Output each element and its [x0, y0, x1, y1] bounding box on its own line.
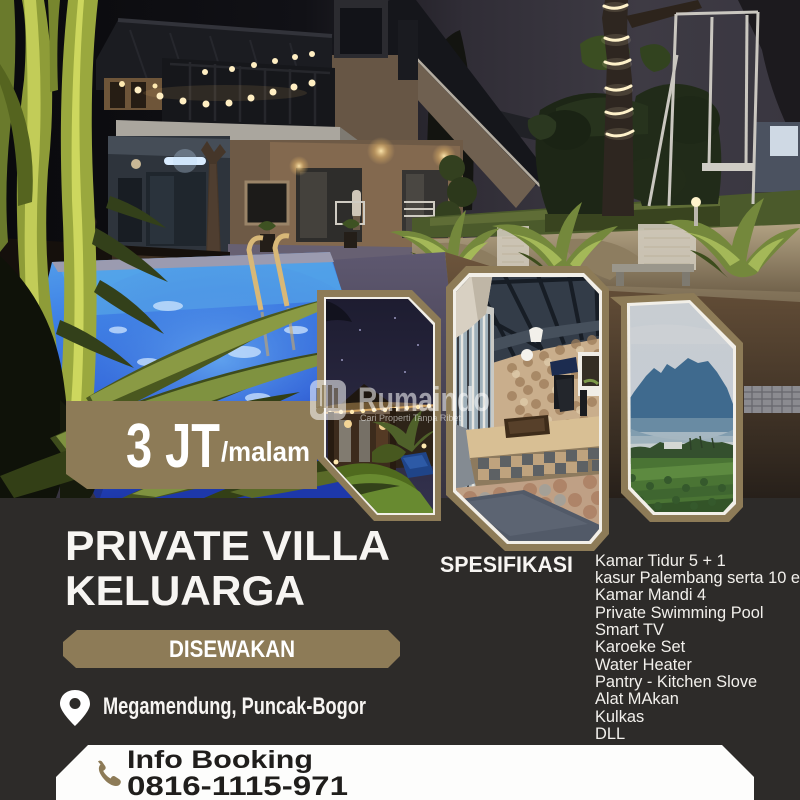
svg-text:DLL: DLL	[595, 725, 625, 743]
svg-text:kasur Palembang serta 10 extra: kasur Palembang serta 10 extra	[595, 569, 800, 587]
svg-text:Info Booking: Info Booking	[127, 746, 313, 774]
svg-text:Water Heater: Water Heater	[595, 656, 692, 674]
svg-text:Alat MAkan: Alat MAkan	[595, 690, 679, 708]
svg-text:Kamar Mandi 4: Kamar Mandi 4	[595, 586, 706, 604]
svg-text:Private Swimming Pool: Private Swimming Pool	[595, 604, 764, 622]
svg-text:Kulkas: Kulkas	[595, 708, 644, 726]
svg-text:Megamendung, Puncak-Bogor: Megamendung, Puncak-Bogor	[103, 693, 366, 720]
svg-text:Cari Properti Tanpa Ribet: Cari Properti Tanpa Ribet	[360, 413, 461, 423]
svg-text:KELUARGA: KELUARGA	[65, 567, 305, 614]
svg-text:Pantry - Kitchen Slove: Pantry - Kitchen Slove	[595, 673, 757, 691]
svg-text:SPESIFIKASI: SPESIFIKASI	[440, 552, 573, 577]
svg-text:DISEWAKAN: DISEWAKAN	[169, 636, 295, 663]
svg-text:3 JT: 3 JT	[126, 412, 220, 481]
svg-text:Karoeke Set: Karoeke Set	[595, 638, 686, 656]
svg-text:Smart TV: Smart TV	[595, 621, 664, 639]
svg-text:/malam: /malam	[221, 436, 310, 467]
svg-text:PRIVATE VILLA: PRIVATE VILLA	[65, 522, 390, 569]
svg-text:Kamar Tidur 5 + 1: Kamar Tidur 5 + 1	[595, 552, 726, 570]
svg-text:0816-1115-971: 0816-1115-971	[127, 771, 348, 800]
